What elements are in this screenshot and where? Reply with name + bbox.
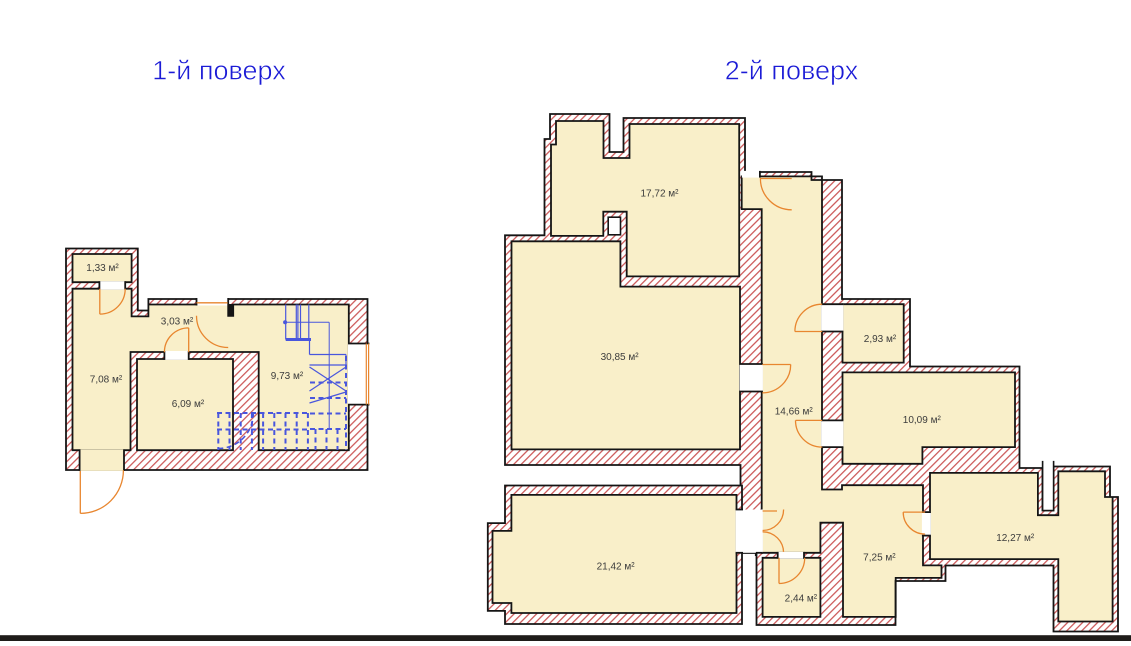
svg-text:7,25 м²: 7,25 м² [863,553,896,564]
svg-text:1-й поверх: 1-й поверх [152,56,286,86]
svg-text:2,44 м²: 2,44 м² [785,594,818,605]
svg-text:14,66 м²: 14,66 м² [775,407,814,418]
svg-text:6,09 м²: 6,09 м² [172,399,205,410]
svg-text:3,03 м²: 3,03 м² [161,317,194,328]
svg-text:9,73 м²: 9,73 м² [271,371,304,382]
svg-text:10,09 м²: 10,09 м² [903,415,942,426]
svg-text:21,42 м²: 21,42 м² [597,562,636,573]
svg-text:17,72 м²: 17,72 м² [640,189,679,200]
svg-text:12,27 м²: 12,27 м² [996,533,1035,544]
svg-text:1,33 м²: 1,33 м² [86,263,119,274]
svg-text:2-й поверх: 2-й поверх [725,56,859,86]
svg-text:7,08 м²: 7,08 м² [90,375,123,386]
svg-text:30,85 м²: 30,85 м² [601,352,640,363]
svg-text:2,93 м²: 2,93 м² [864,334,897,345]
